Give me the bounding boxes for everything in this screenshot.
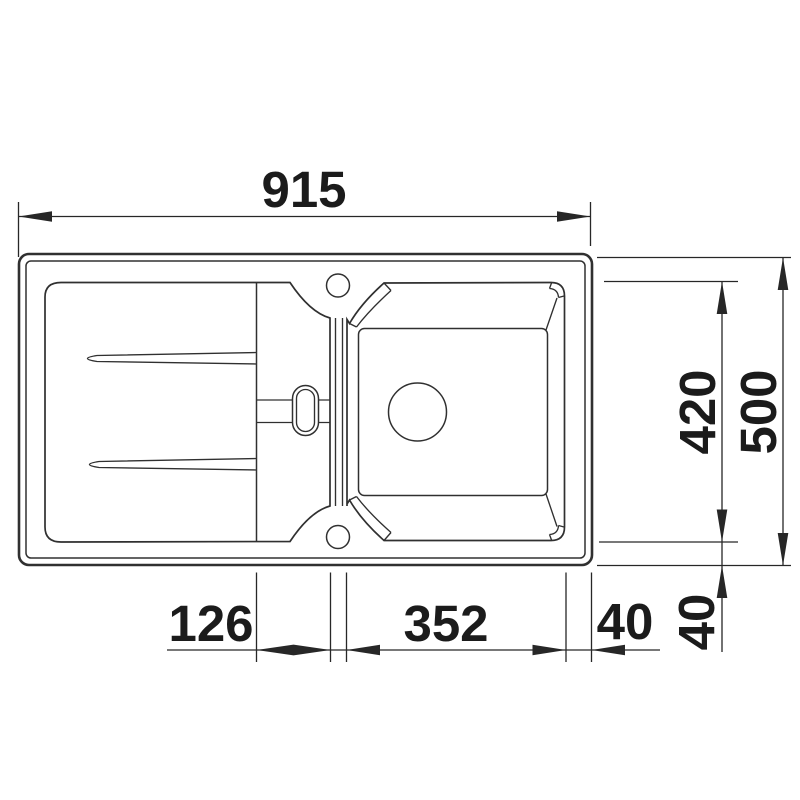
bowl-width-label: 352: [403, 595, 488, 652]
sink-rim-line: [26, 261, 585, 558]
bowl-corner-facet-top-right: [550, 283, 565, 298]
tap-hole-top: [327, 274, 350, 297]
arrowhead-bowl-depth-top: [717, 282, 728, 315]
sink-outer-edge: [19, 254, 592, 565]
bowl-inner-wall: [359, 329, 548, 496]
sink-dimension-diagram: 915 420 500 40 126 352 40: [0, 0, 800, 800]
sink-plan-view: [19, 254, 592, 565]
arrowhead-overall-depth-bottom: [778, 533, 789, 566]
drainboard-recess-outline: [45, 283, 330, 543]
overall-width-label: 915: [261, 161, 346, 218]
bowl-corner-facet-bottom-left: [350, 497, 392, 541]
overall-depth-label: 500: [730, 369, 787, 454]
divider-wall-lines: [336, 318, 343, 506]
bowl-depth-label: 420: [669, 369, 726, 454]
technical-drawing-svg: 915 420 500 40 126 352 40: [0, 0, 800, 800]
bottom-dimensions: 126 352 40: [167, 573, 660, 663]
drain-hole: [389, 383, 447, 441]
bowl-corner-facet-top-left: [350, 283, 392, 327]
arrowhead-right: [557, 211, 591, 221]
drainer-step-width-label: 126: [168, 595, 253, 652]
bowl-offset-right-label: 40: [597, 593, 654, 650]
drain-groove-bottom: [90, 459, 257, 471]
arrowhead-bowl-depth-bottom: [717, 510, 728, 543]
overflow-handle-inner: [297, 390, 315, 432]
arrowhead-overall-depth-top: [778, 258, 789, 291]
overall-width-dimension: 915: [19, 161, 591, 257]
arrowhead-bowl-width-right: [533, 645, 567, 656]
bowl-outline: [347, 283, 565, 541]
arrowhead-drainer-step-double: [257, 645, 331, 656]
bowl-corner-facet-bottom-right: [550, 526, 565, 541]
bowl-offset-bottom-label: 40: [668, 594, 725, 651]
arrowhead-bottom-offset: [717, 566, 728, 599]
arrowhead-left: [19, 211, 53, 221]
arrowhead-bowl-width-left: [347, 645, 381, 656]
drain-groove-top: [88, 353, 257, 365]
tap-hole-bottom: [327, 526, 350, 549]
